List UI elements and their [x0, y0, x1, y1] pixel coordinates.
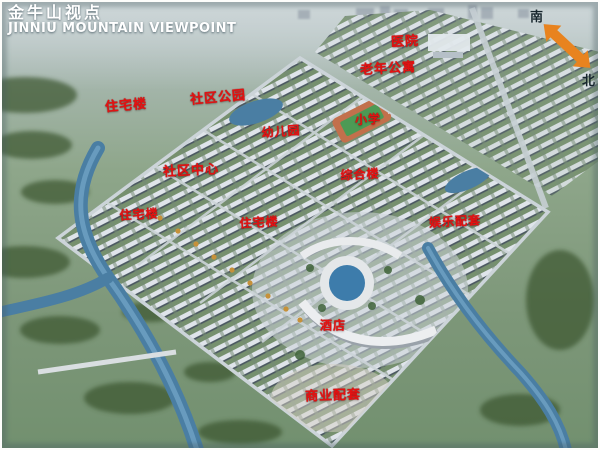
site-label: 综合楼: [340, 164, 380, 183]
site-label: 住宅楼: [119, 204, 159, 223]
aerial-rendering-image: 金牛山视点 JINNIU MOUNTAIN VIEWPOINT 医院老年公寓住宅…: [0, 0, 600, 450]
site-label: 小学: [355, 110, 382, 128]
site-label: 幼儿园: [261, 121, 301, 141]
label-layer: 医院老年公寓住宅楼社区公园幼儿园小学社区中心综合楼住宅楼住宅楼娱乐配套酒店商业配…: [0, 0, 600, 450]
site-label: 社区中心: [163, 158, 220, 180]
site-label: 老年公寓: [360, 56, 417, 78]
site-label: 商业配套: [305, 384, 362, 405]
site-label: 住宅楼: [239, 212, 279, 231]
site-label: 社区公园: [189, 84, 246, 108]
site-label: 住宅楼: [104, 93, 148, 116]
site-label: 医院: [391, 30, 420, 50]
compass: 南 北: [520, 0, 600, 100]
site-label: 娱乐配套: [429, 211, 482, 231]
site-label: 酒店: [320, 317, 346, 334]
compass-south-label: 南: [530, 6, 543, 25]
compass-north-label: 北: [582, 70, 595, 89]
